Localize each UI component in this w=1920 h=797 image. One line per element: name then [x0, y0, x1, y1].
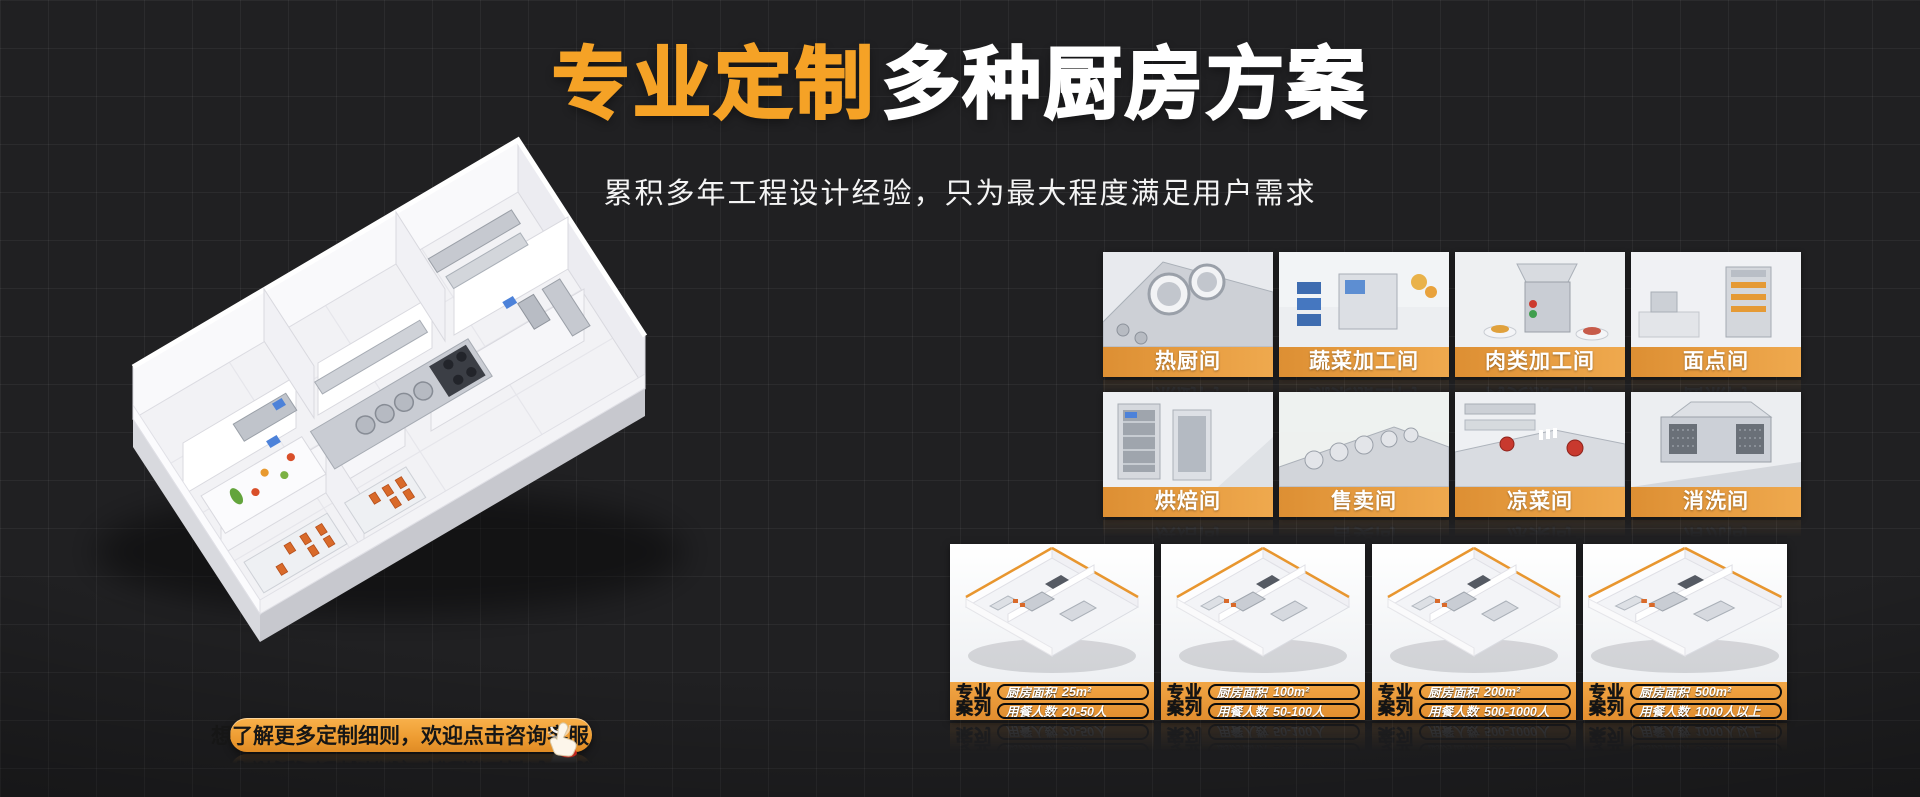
consult-cta-button[interactable]: 想了解更多定制细则，欢迎点击咨询客服 — [230, 718, 592, 752]
case-badge: 专业案列 — [1378, 685, 1414, 717]
room-photo-illustration — [1455, 392, 1625, 487]
badge-line: 案列 — [1589, 701, 1625, 717]
room-tile-serving[interactable]: 售卖间 — [1279, 392, 1449, 517]
case-specs: 厨房面积200m² 用餐人数500-1000人 — [1419, 684, 1571, 719]
room-photo-illustration — [1631, 252, 1801, 347]
kitchen-floorplan-3d-illustration — [100, 112, 665, 672]
case-floorplan-illustration — [950, 544, 1154, 682]
room-photo-illustration — [1279, 252, 1449, 347]
case-card-500m2[interactable]: 专业案列 厨房面积500m² 用餐人数1000人以上 — [1583, 544, 1787, 720]
title-rest: 多种厨房方案 — [882, 40, 1368, 128]
room-photo-illustration — [1103, 252, 1273, 347]
badge-line: 案列 — [1378, 701, 1414, 717]
room-tile-dishwashing[interactable]: 消洗间 — [1631, 392, 1801, 517]
spec-area: 厨房面积200m² — [1419, 684, 1571, 700]
room-photo-illustration — [1279, 392, 1449, 487]
spec-diners: 用餐人数500-1000人 — [1419, 703, 1571, 719]
room-tile-cold-dishes[interactable]: 凉菜间 — [1455, 392, 1625, 517]
spec-diners: 用餐人数20-50人 — [997, 703, 1149, 719]
room-label: 肉类加工间 — [1455, 347, 1625, 377]
room-photo-illustration — [1103, 392, 1273, 487]
case-card-200m2[interactable]: 专业案列 厨房面积200m² 用餐人数500-1000人 — [1372, 544, 1576, 720]
spec-diners: 用餐人数1000人以上 — [1630, 703, 1782, 719]
room-label: 售卖间 — [1279, 487, 1449, 517]
spec-area: 厨房面积25m² — [997, 684, 1149, 700]
floorplan-svg — [100, 112, 665, 672]
cta-label: 想了解更多定制细则，欢迎点击咨询客服 — [211, 720, 589, 750]
case-card-25m2[interactable]: 专业案列 厨房面积25m² 用餐人数20-50人 — [950, 544, 1154, 720]
room-tile-vegetable-processing[interactable]: 蔬菜加工间 — [1279, 252, 1449, 377]
case-banner: 专业案列 厨房面积25m² 用餐人数20-50人 — [950, 682, 1154, 720]
room-label: 烘焙间 — [1103, 487, 1273, 517]
case-banner: 专业案列 厨房面积500m² 用餐人数1000人以上 — [1583, 682, 1787, 720]
case-gallery: 专业案列 厨房面积25m² 用餐人数20-50人 专业案列 厨房面积100m² … — [950, 544, 1787, 720]
spec-diners: 用餐人数50-100人 — [1208, 703, 1360, 719]
case-banner: 专业案列 厨房面积100m² 用餐人数50-100人 — [1161, 682, 1365, 720]
room-label: 蔬菜加工间 — [1279, 347, 1449, 377]
case-specs: 厨房面积500m² 用餐人数1000人以上 — [1630, 684, 1782, 719]
spec-area: 厨房面积500m² — [1630, 684, 1782, 700]
badge-line: 案列 — [1167, 701, 1203, 717]
case-banner: 专业案列 厨房面积200m² 用餐人数500-1000人 — [1372, 682, 1576, 720]
room-tile-baking[interactable]: 烘焙间 — [1103, 392, 1273, 517]
case-specs: 厨房面积100m² 用餐人数50-100人 — [1208, 684, 1360, 719]
room-tile-pastry[interactable]: 面点间 — [1631, 252, 1801, 377]
room-tile-meat-processing[interactable]: 肉类加工间 — [1455, 252, 1625, 377]
badge-line: 案列 — [956, 701, 992, 717]
case-floorplan-illustration — [1372, 544, 1576, 682]
room-photo-illustration — [1455, 252, 1625, 347]
case-badge: 专业案列 — [956, 685, 992, 717]
room-label: 凉菜间 — [1455, 487, 1625, 517]
room-label: 消洗间 — [1631, 487, 1801, 517]
tap-hand-icon — [538, 709, 590, 761]
case-floorplan-illustration — [1583, 544, 1787, 682]
room-photo-illustration — [1631, 392, 1801, 487]
case-card-100m2[interactable]: 专业案列 厨房面积100m² 用餐人数50-100人 — [1161, 544, 1365, 720]
case-specs: 厨房面积25m² 用餐人数20-50人 — [997, 684, 1149, 719]
spec-area: 厨房面积100m² — [1208, 684, 1360, 700]
case-badge: 专业案列 — [1589, 685, 1625, 717]
room-tile-hot-kitchen[interactable]: 热厨间 — [1103, 252, 1273, 377]
room-label: 面点间 — [1631, 347, 1801, 377]
room-label: 热厨间 — [1103, 347, 1273, 377]
case-badge: 专业案列 — [1167, 685, 1203, 717]
room-gallery: 热厨间 蔬菜加工间 肉类加工间 — [1103, 252, 1801, 517]
case-floorplan-illustration — [1161, 544, 1365, 682]
